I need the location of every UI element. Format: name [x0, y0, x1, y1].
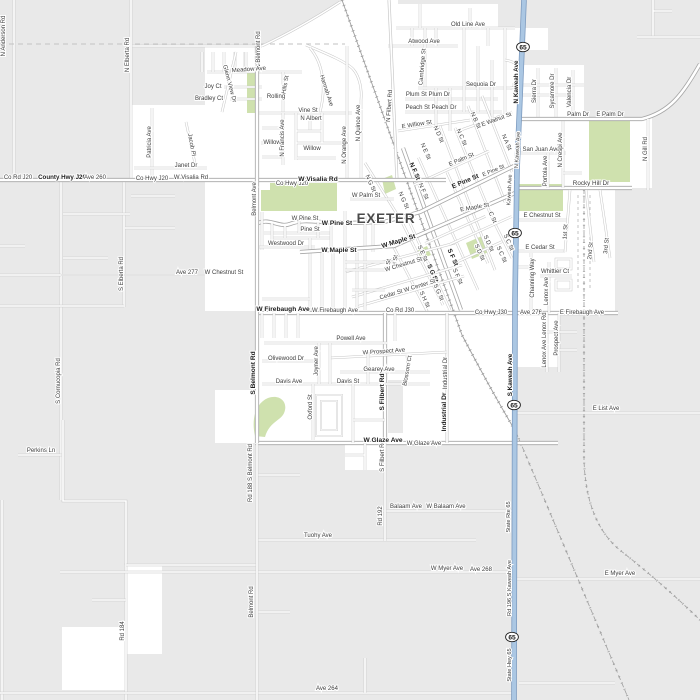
svg-text:Plum St Plum Dr: Plum St Plum Dr	[406, 92, 450, 98]
svg-text:E List Ave: E List Ave	[593, 406, 620, 412]
svg-text:Industrial Dr: Industrial Dr	[441, 392, 448, 431]
svg-text:Willow: Willow	[263, 140, 281, 146]
svg-text:Ave 260: Ave 260	[84, 175, 107, 181]
svg-text:Industrial Dr: Industrial Dr	[443, 357, 449, 389]
svg-text:S Elberta Rd: S Elberta Rd	[119, 257, 125, 291]
svg-text:Sierra Dr: Sierra Dr	[532, 79, 538, 103]
svg-text:S Filbert Rd: S Filbert Rd	[380, 440, 386, 472]
svg-text:Tuohy Ave: Tuohy Ave	[304, 533, 333, 539]
svg-text:Westwood Dr: Westwood Dr	[268, 241, 304, 247]
svg-text:County Hwy J20: County Hwy J20	[38, 174, 86, 181]
svg-text:N Albert: N Albert	[300, 116, 322, 122]
svg-text:N Quince Ave: N Quince Ave	[356, 104, 362, 141]
svg-text:W Pine St: W Pine St	[322, 220, 353, 227]
svg-text:Belmont Ave: Belmont Ave	[252, 182, 258, 216]
svg-text:W Pine St: W Pine St	[292, 216, 319, 222]
svg-text:Channing Way: Channing Way	[530, 258, 536, 297]
svg-text:Olivewood Dr: Olivewood Dr	[268, 356, 304, 362]
svg-text:Sequoia Dr: Sequoia Dr	[466, 82, 496, 88]
svg-text:Davis Ave: Davis Ave	[276, 379, 303, 385]
svg-text:N Elberta Rd: N Elberta Rd	[125, 38, 131, 72]
svg-text:W Visalia Rd: W Visalia Rd	[174, 175, 208, 181]
svg-text:W Glaze Ave: W Glaze Ave	[407, 441, 442, 447]
svg-text:Prospect Ave: Prospect Ave	[554, 320, 560, 356]
svg-text:S Kaweah Ave: S Kaweah Ave	[507, 353, 514, 396]
svg-text:E Myer Ave: E Myer Ave	[605, 571, 636, 577]
svg-text:W Palm St: W Palm St	[352, 193, 381, 199]
svg-text:N Kaweah Ave: N Kaweah Ave	[513, 60, 520, 103]
svg-text:E Chestnut St: E Chestnut St	[523, 213, 560, 219]
svg-text:65: 65	[519, 44, 527, 51]
svg-text:Powell Ave: Powell Ave	[336, 336, 366, 342]
svg-text:65: 65	[511, 230, 519, 237]
svg-text:Janet Dr: Janet Dr	[175, 163, 198, 169]
svg-text:Co Rd J30: Co Rd J30	[386, 308, 415, 314]
svg-text:Valencia Dr: Valencia Dr	[567, 77, 573, 108]
svg-text:N Orange Ave: N Orange Ave	[342, 126, 348, 164]
svg-text:S Belmont Rd: S Belmont Rd	[250, 351, 257, 394]
svg-text:Vine St: Vine St	[298, 108, 318, 114]
svg-text:Rocky Hill Dr: Rocky Hill Dr	[573, 180, 609, 187]
svg-text:Atwood Ave: Atwood Ave	[408, 39, 440, 45]
svg-text:Sycamore Dr: Sycamore Dr	[550, 73, 556, 108]
svg-text:65: 65	[510, 402, 518, 409]
svg-text:San Juan Ave: San Juan Ave	[523, 147, 561, 153]
svg-text:Rolling: Rolling	[267, 94, 285, 100]
svg-text:Joyner Ave: Joyner Ave	[314, 346, 320, 376]
svg-text:Bradley Ct: Bradley Ct	[195, 96, 223, 102]
svg-text:1st St: 1st St	[562, 224, 569, 240]
svg-text:Joy Ct: Joy Ct	[204, 84, 221, 90]
svg-text:N Anderson Rd: N Anderson Rd	[1, 16, 7, 57]
svg-text:W Maple St: W Maple St	[321, 247, 357, 254]
svg-text:Palm Dr: Palm Dr	[567, 112, 589, 118]
svg-text:Lenox Ave: Lenox Ave	[544, 276, 550, 305]
svg-text:N Francis Ave: N Francis Ave	[280, 119, 286, 157]
svg-text:W Visalia Rd: W Visalia Rd	[298, 176, 337, 183]
svg-text:W Firebaugh Ave: W Firebaugh Ave	[256, 306, 310, 313]
svg-text:N Gill Rd: N Gill Rd	[643, 137, 649, 161]
svg-text:Co Rd J20: Co Rd J20	[4, 175, 33, 181]
svg-text:Oxford St: Oxford St	[308, 394, 314, 420]
svg-text:State Hwy 65: State Hwy 65	[507, 648, 513, 681]
svg-text:Perkins Ln: Perkins Ln	[27, 448, 55, 454]
svg-text:Co Hwy J30: Co Hwy J30	[475, 310, 508, 316]
svg-text:E Palm Dr: E Palm Dr	[596, 112, 623, 118]
svg-text:Balaam Ave: Balaam Ave	[390, 504, 423, 510]
svg-text:Pine St: Pine St	[300, 227, 320, 233]
svg-text:S Filbert Rd: S Filbert Rd	[379, 374, 386, 411]
svg-text:65: 65	[508, 634, 516, 641]
svg-text:W Myer Ave: W Myer Ave	[431, 566, 464, 572]
svg-text:Old Line Ave: Old Line Ave	[451, 22, 486, 28]
svg-text:W Chestnut St: W Chestnut St	[205, 270, 244, 276]
svg-text:Rd 192: Rd 192	[378, 506, 384, 526]
svg-text:Ave 276: Ave 276	[520, 310, 543, 316]
svg-text:Lenox Ave Lenox Rd: Lenox Ave Lenox Rd	[542, 312, 548, 367]
svg-text:Rd 188 S Belmont Rd: Rd 188 S Belmont Rd	[248, 444, 254, 502]
svg-text:Whittier Ct: Whittier Ct	[541, 269, 569, 275]
svg-text:State Rte 65: State Rte 65	[506, 501, 512, 532]
svg-text:N Crespi Ave: N Crespi Ave	[558, 132, 564, 168]
svg-text:Rd 184: Rd 184	[120, 621, 126, 641]
svg-text:Belmont Rd: Belmont Rd	[249, 586, 255, 617]
svg-text:Rd 196 S Kaweah Ave: Rd 196 S Kaweah Ave	[507, 560, 513, 616]
svg-text:Portola Ave: Portola Ave	[543, 155, 549, 186]
svg-text:Patricia Ave: Patricia Ave	[147, 126, 153, 158]
svg-text:W Firebaugh Ave: W Firebaugh Ave	[312, 308, 359, 314]
svg-text:W Glaze Ave: W Glaze Ave	[363, 437, 402, 444]
svg-text:Ave 277: Ave 277	[176, 270, 199, 276]
svg-text:Willow: Willow	[303, 146, 321, 152]
svg-text:Ave 264: Ave 264	[316, 686, 339, 692]
svg-text:E Cedar St: E Cedar St	[525, 245, 555, 251]
svg-text:Davis St: Davis St	[337, 379, 360, 385]
svg-text:N Belmont Rd: N Belmont Rd	[256, 31, 262, 68]
svg-text:S Cornucopia Rd: S Cornucopia Rd	[56, 358, 62, 404]
svg-text:E Firebaugh Ave: E Firebaugh Ave	[560, 310, 605, 316]
svg-text:EXETER: EXETER	[357, 211, 416, 226]
svg-text:Ave 268: Ave 268	[470, 567, 493, 573]
svg-text:Gearey Ave: Gearey Ave	[363, 367, 395, 373]
svg-text:W Balaam Ave: W Balaam Ave	[426, 504, 466, 510]
svg-text:Peach St Peach Dr: Peach St Peach Dr	[405, 105, 456, 111]
svg-text:Co Hwy J20: Co Hwy J20	[136, 176, 169, 182]
